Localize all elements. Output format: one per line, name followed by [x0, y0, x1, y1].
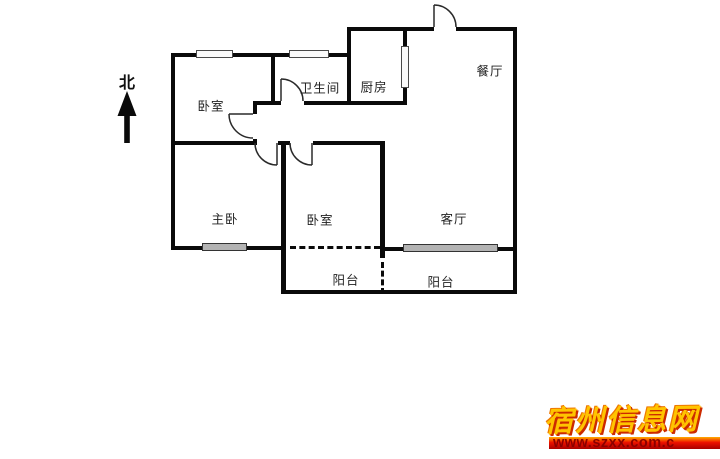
plan-linework — [0, 0, 720, 459]
room-label-dining-room: 餐厅 — [476, 61, 503, 80]
wall-hallway-top-b — [304, 101, 407, 105]
door-arc-entry — [434, 5, 456, 27]
room-label-bedroom-south: 卧室 — [306, 210, 333, 229]
wall-top-kitchen-dining-a — [347, 27, 434, 31]
watermark-site-name: 宿州信息网 — [544, 396, 705, 441]
wall-living-bottom-b — [498, 247, 517, 251]
wall-bedrooms-top-c — [313, 141, 385, 145]
room-label-master-bedroom: 主卧 — [211, 209, 238, 228]
wall-master-bottom-b — [247, 246, 286, 250]
wall-master-bottom-a — [171, 246, 202, 250]
door-arc-bedroom-south — [290, 143, 312, 165]
watermark-url: www.szxx.com.c — [549, 437, 720, 449]
wall-center-divider — [281, 141, 286, 294]
room-label-balcony-east: 阳台 — [427, 272, 454, 291]
wall-bedroom-bathroom-divider — [271, 53, 275, 105]
window-bedroom-north — [196, 50, 233, 58]
north-label: 北 — [119, 69, 135, 93]
window-master-bedroom — [202, 243, 247, 251]
room-label-balcony-west: 阳台 — [332, 270, 359, 289]
room-label-bathroom: 卫生间 — [300, 78, 341, 97]
north-arrow-icon — [118, 91, 137, 143]
room-label-bedroom-north: 卧室 — [197, 96, 224, 115]
door-arc-master-bedroom — [255, 143, 277, 165]
wall-outer-left — [171, 53, 175, 250]
wall-outer-right — [513, 27, 517, 294]
window-bathroom — [289, 50, 329, 58]
dashed-wall-balcony-divider — [381, 262, 384, 294]
room-label-kitchen: 厨房 — [360, 77, 387, 96]
wall-balcony-bottom — [281, 290, 517, 294]
wall-top-kitchen-dining-b — [456, 27, 517, 31]
room-label-living-room: 客厅 — [440, 209, 467, 228]
wall-hallway-left-a — [253, 101, 257, 114]
wall-bedroom-south-right — [380, 141, 385, 258]
wall-bedrooms-top-a — [171, 141, 255, 145]
watermark-url-bar: www.szxx.com.c — [549, 437, 720, 449]
wall-kitchen-left — [347, 27, 351, 105]
window-kitchen — [401, 46, 409, 88]
floor-plan-image: 北 卧室 卫生间 厨房 餐厅 主卧 卧室 客厅 阳台 阳台 宿州信息网 www.… — [0, 0, 720, 459]
wall-hallway-top-a — [253, 101, 281, 105]
dashed-wall-bedroom-south-bottom — [290, 246, 380, 249]
door-arc-bedroom-north — [229, 114, 253, 138]
window-living-room — [403, 244, 498, 252]
wall-living-bottom-a — [385, 247, 403, 251]
